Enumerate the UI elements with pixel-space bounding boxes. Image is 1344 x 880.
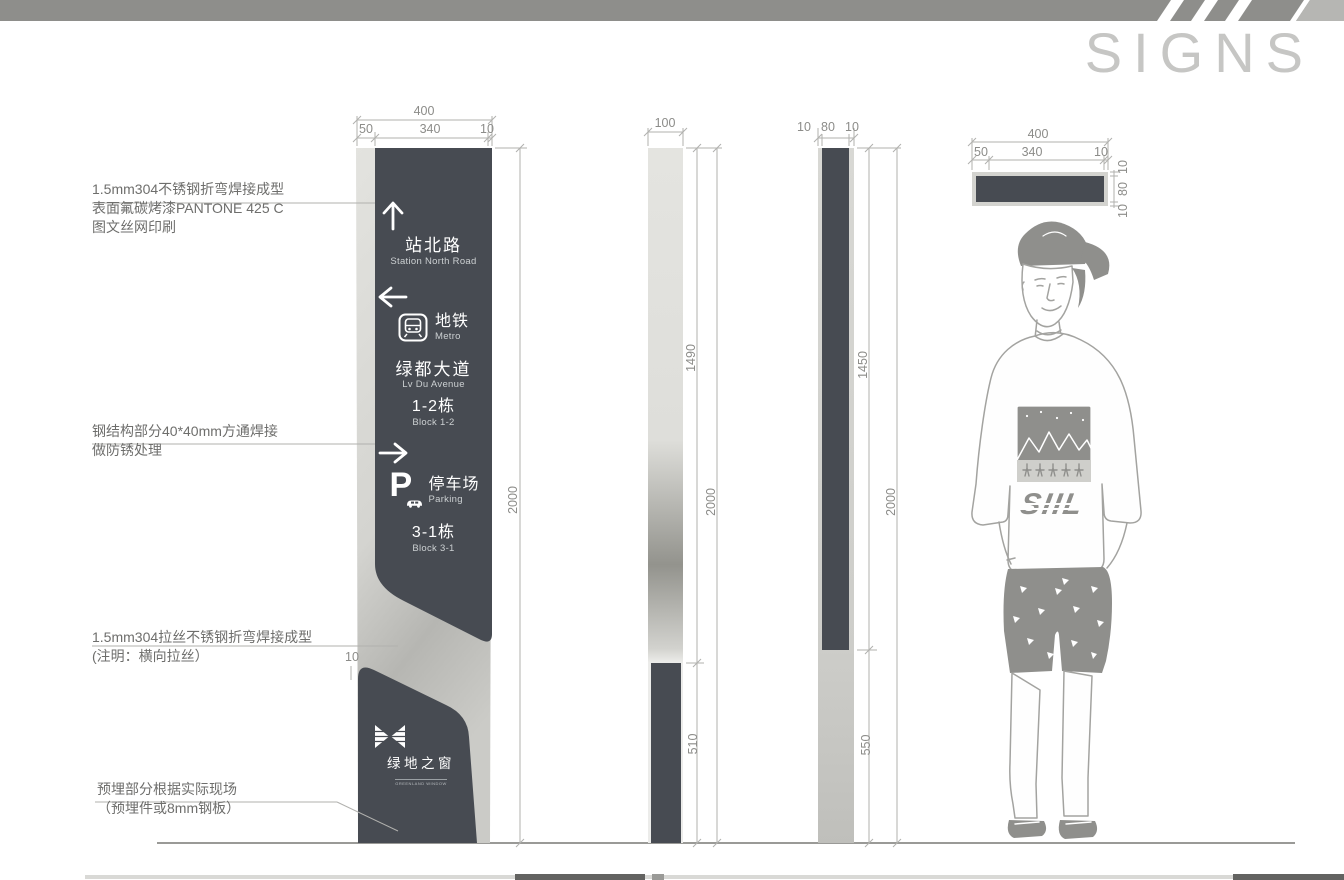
note-line: 做防锈处理 xyxy=(92,441,278,460)
dim-sidea-lower: 510 xyxy=(686,734,700,755)
car-icon xyxy=(405,498,424,508)
dim-sidea-upper: 1490 xyxy=(684,344,698,372)
dim-front-b: 340 xyxy=(420,122,441,136)
hair xyxy=(1072,268,1085,308)
pylon-side-view-a xyxy=(648,148,683,843)
metro-en: Metro xyxy=(435,331,469,342)
block2-zh: 3-1栋 xyxy=(375,524,492,542)
dim-plan-a: 50 xyxy=(974,145,988,159)
dim-plan-total: 400 xyxy=(1028,127,1049,141)
dim-plan-c: 10 xyxy=(1094,145,1108,159)
note-line: (注明：横向拉丝） xyxy=(92,647,312,666)
human-figure: SIIL xyxy=(945,218,1160,850)
logo-mark-icon xyxy=(373,724,407,749)
shorts xyxy=(1004,567,1113,673)
note-line: （预埋件或8mm钢板） xyxy=(97,799,240,818)
dim-plan-right-a: 10 xyxy=(1116,160,1130,174)
legs xyxy=(1010,673,1040,818)
note-embedded-base: 预埋部分根据实际现场 （预埋件或8mm钢板） xyxy=(97,780,240,818)
dim-front-a: 50 xyxy=(359,122,373,136)
note-line: 1.5mm304拉丝不锈钢折弯焊接成型 xyxy=(92,628,312,647)
note-line: 1.5mm304不锈钢折弯焊接成型 xyxy=(92,180,284,199)
block2-en: Block 3-1 xyxy=(375,543,492,554)
dim-plan-b: 340 xyxy=(1022,145,1043,159)
dim-sidea-total: 2000 xyxy=(704,488,718,516)
ave-zh: 绿都大道 xyxy=(375,360,492,379)
dim-sideb-a: 10 xyxy=(797,120,811,134)
dim-front-total: 400 xyxy=(414,104,435,118)
note-line: 表面氟碳烤漆PANTONE 425 C xyxy=(92,199,284,218)
ave-en: Lv Du Avenue xyxy=(375,379,492,390)
block1-en: Block 1-2 xyxy=(375,417,492,428)
arrow-right-icon xyxy=(375,440,492,466)
note-line: 图文丝网印刷 xyxy=(92,218,284,237)
arrow-left-icon xyxy=(375,284,492,310)
cap xyxy=(1018,222,1089,267)
footer-strip xyxy=(85,874,1344,880)
parking-en: Parking xyxy=(428,494,479,505)
parking-row: P 停车场 Parking xyxy=(375,470,492,510)
note-line: 钢结构部分40*40mm方通焊接 xyxy=(92,422,278,441)
dim-front-c: 10 xyxy=(480,122,494,136)
dim-sideb-total: 2000 xyxy=(884,488,898,516)
dim-plan-right-b: 80 xyxy=(1116,182,1130,196)
dest1-zh: 站北路 xyxy=(375,236,492,255)
header-bar xyxy=(0,0,1344,21)
dim-sideb-upper: 1450 xyxy=(856,351,870,379)
arrow-up-icon xyxy=(375,198,492,232)
logo-zh: 绿地之窗 xyxy=(373,752,469,772)
dim-plan-right-c: 10 xyxy=(1116,204,1130,218)
metro-row: 地铁 Metro xyxy=(375,313,492,342)
logo-en: GREENLAND WINDOW xyxy=(395,779,447,786)
page-title: SIGNS xyxy=(1085,20,1314,85)
dim-sideb-lower: 550 xyxy=(859,735,873,756)
plan-view xyxy=(972,172,1108,206)
note-line: 预埋部分根据实际现场 xyxy=(97,780,240,799)
metro-icon xyxy=(398,313,428,342)
parking-zh: 停车场 xyxy=(428,476,479,494)
dim-sideb-c: 10 xyxy=(845,120,859,134)
dest1-en: Station North Road xyxy=(375,256,492,267)
sign-face: 站北路 Station North Road 地铁 Metro 绿都大道 Lv … xyxy=(375,148,492,708)
note-brushed-steel: 1.5mm304拉丝不锈钢折弯焊接成型 (注明：横向拉丝） xyxy=(92,628,312,666)
parking-icon: P xyxy=(387,470,421,510)
note-material-top: 1.5mm304不锈钢折弯焊接成型 表面氟碳烤漆PANTONE 425 C 图文… xyxy=(92,180,284,237)
note-steel-structure: 钢结构部分40*40mm方通焊接 做防锈处理 xyxy=(92,422,278,460)
design-sheet: SIIL SIGNS 1.5mm304不锈钢折 xyxy=(0,0,1344,880)
brand-logo: 绿地之窗 GREENLAND WINDOW xyxy=(373,724,469,790)
block1-zh: 1-2栋 xyxy=(375,398,492,416)
dim-front-band: 10 xyxy=(345,650,359,664)
dim-front-height: 2000 xyxy=(506,486,520,514)
pylon-side-view-b xyxy=(818,148,854,843)
dim-sideb-b: 80 xyxy=(821,120,835,134)
metro-zh: 地铁 xyxy=(435,313,469,331)
dim-sidea-width: 100 xyxy=(655,116,676,130)
